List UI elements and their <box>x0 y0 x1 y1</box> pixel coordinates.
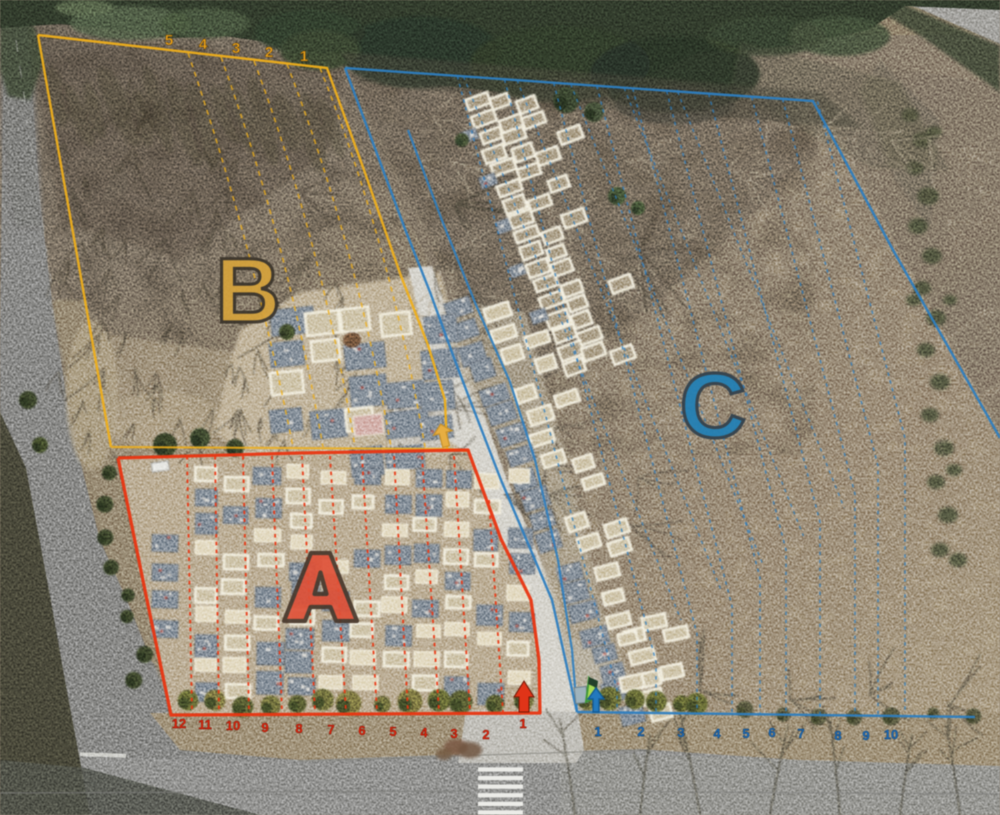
svg-text:5: 5 <box>165 32 173 49</box>
svg-text:9: 9 <box>862 728 869 743</box>
svg-text:2: 2 <box>637 724 644 739</box>
svg-text:6: 6 <box>768 725 775 740</box>
svg-text:C: C <box>680 355 746 457</box>
svg-text:B: B <box>215 240 280 342</box>
svg-text:9: 9 <box>261 720 268 735</box>
svg-text:2: 2 <box>265 44 273 61</box>
svg-text:7: 7 <box>797 726 804 741</box>
svg-text:4: 4 <box>420 725 428 740</box>
svg-text:4: 4 <box>713 726 721 741</box>
svg-text:11: 11 <box>198 717 212 732</box>
svg-text:10: 10 <box>884 727 898 742</box>
svg-text:10: 10 <box>226 718 240 733</box>
svg-text:12: 12 <box>172 716 186 731</box>
svg-text:5: 5 <box>389 724 396 739</box>
svg-text:4: 4 <box>199 36 208 53</box>
svg-text:1: 1 <box>519 716 526 731</box>
svg-text:6: 6 <box>358 723 365 738</box>
svg-text:3: 3 <box>450 726 457 741</box>
svg-text:2: 2 <box>482 727 489 742</box>
svg-text:7: 7 <box>327 722 334 737</box>
svg-text:3: 3 <box>232 40 240 57</box>
svg-text:8: 8 <box>834 728 841 743</box>
svg-text:5: 5 <box>742 726 749 741</box>
svg-text:3: 3 <box>677 725 684 740</box>
svg-text:8: 8 <box>295 721 302 736</box>
svg-text:1: 1 <box>300 48 308 65</box>
svg-text:1: 1 <box>594 724 601 739</box>
